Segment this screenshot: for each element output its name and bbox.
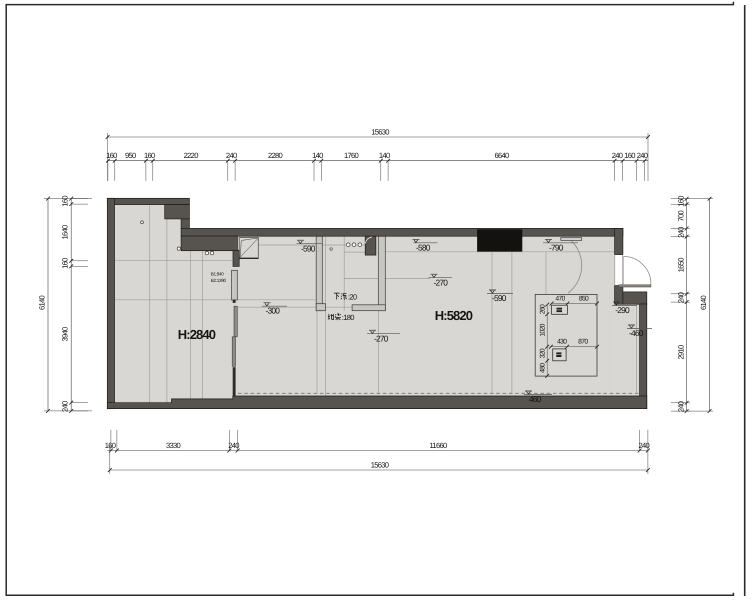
svg-text:320: 320 <box>539 348 546 358</box>
svg-text:-460: -460 <box>629 328 644 338</box>
svg-text:-270: -270 <box>374 333 389 343</box>
svg-text:140: 140 <box>379 151 390 160</box>
svg-text:6140: 6140 <box>38 295 47 310</box>
svg-text:15630: 15630 <box>371 128 389 137</box>
svg-text:480: 480 <box>539 363 546 373</box>
svg-text:H:2840: H:2840 <box>178 327 216 342</box>
svg-text:-290: -290 <box>615 305 630 315</box>
svg-text:11660: 11660 <box>429 441 447 450</box>
svg-text:B1:940: B1:940 <box>211 272 225 277</box>
svg-text:240: 240 <box>637 151 648 160</box>
svg-text:-790: -790 <box>549 243 564 253</box>
svg-text:140: 140 <box>312 151 323 160</box>
svg-text:240: 240 <box>677 227 686 238</box>
svg-text:160: 160 <box>61 196 70 207</box>
svg-text:1760: 1760 <box>344 151 359 160</box>
svg-text:1650: 1650 <box>677 258 686 273</box>
svg-text::180: :180 <box>342 313 354 322</box>
svg-text:2910: 2910 <box>677 345 686 360</box>
svg-text:1640: 1640 <box>61 225 70 240</box>
svg-text:460: 460 <box>529 394 542 404</box>
svg-text:470: 470 <box>555 296 565 303</box>
svg-text:-270: -270 <box>434 277 449 287</box>
svg-text:240: 240 <box>612 151 623 160</box>
svg-text:3330: 3330 <box>166 441 181 450</box>
svg-text:160: 160 <box>144 151 155 160</box>
svg-text:700: 700 <box>677 211 686 222</box>
svg-text:240: 240 <box>677 401 686 412</box>
svg-text:870: 870 <box>578 339 588 346</box>
svg-text:160: 160 <box>106 151 117 160</box>
svg-text:160: 160 <box>61 258 70 269</box>
svg-text::20: :20 <box>348 292 357 301</box>
svg-text:2220: 2220 <box>184 151 199 160</box>
svg-text:240: 240 <box>61 401 70 412</box>
svg-text:-580: -580 <box>416 243 431 253</box>
svg-text:-300: -300 <box>266 306 281 316</box>
svg-text:260: 260 <box>539 304 546 314</box>
svg-text:B2:1390: B2:1390 <box>211 278 227 283</box>
svg-text:160: 160 <box>677 196 686 207</box>
svg-text:850: 850 <box>579 296 589 303</box>
svg-text:6640: 6640 <box>494 151 509 160</box>
svg-text:950: 950 <box>125 151 136 160</box>
svg-text:-590: -590 <box>492 293 507 303</box>
svg-text:160: 160 <box>624 151 635 160</box>
svg-text:3940: 3940 <box>61 327 70 342</box>
svg-text:240: 240 <box>226 151 237 160</box>
svg-text:15630: 15630 <box>371 461 389 470</box>
svg-text:H:5820: H:5820 <box>435 308 473 323</box>
svg-text:240: 240 <box>677 292 686 303</box>
svg-text:1020: 1020 <box>539 323 546 336</box>
svg-text:160: 160 <box>105 441 116 450</box>
svg-text:2280: 2280 <box>268 151 283 160</box>
svg-text:430: 430 <box>557 339 567 346</box>
svg-text:6140: 6140 <box>699 295 708 310</box>
svg-text:240: 240 <box>228 441 239 450</box>
svg-text:-590: -590 <box>301 243 316 253</box>
